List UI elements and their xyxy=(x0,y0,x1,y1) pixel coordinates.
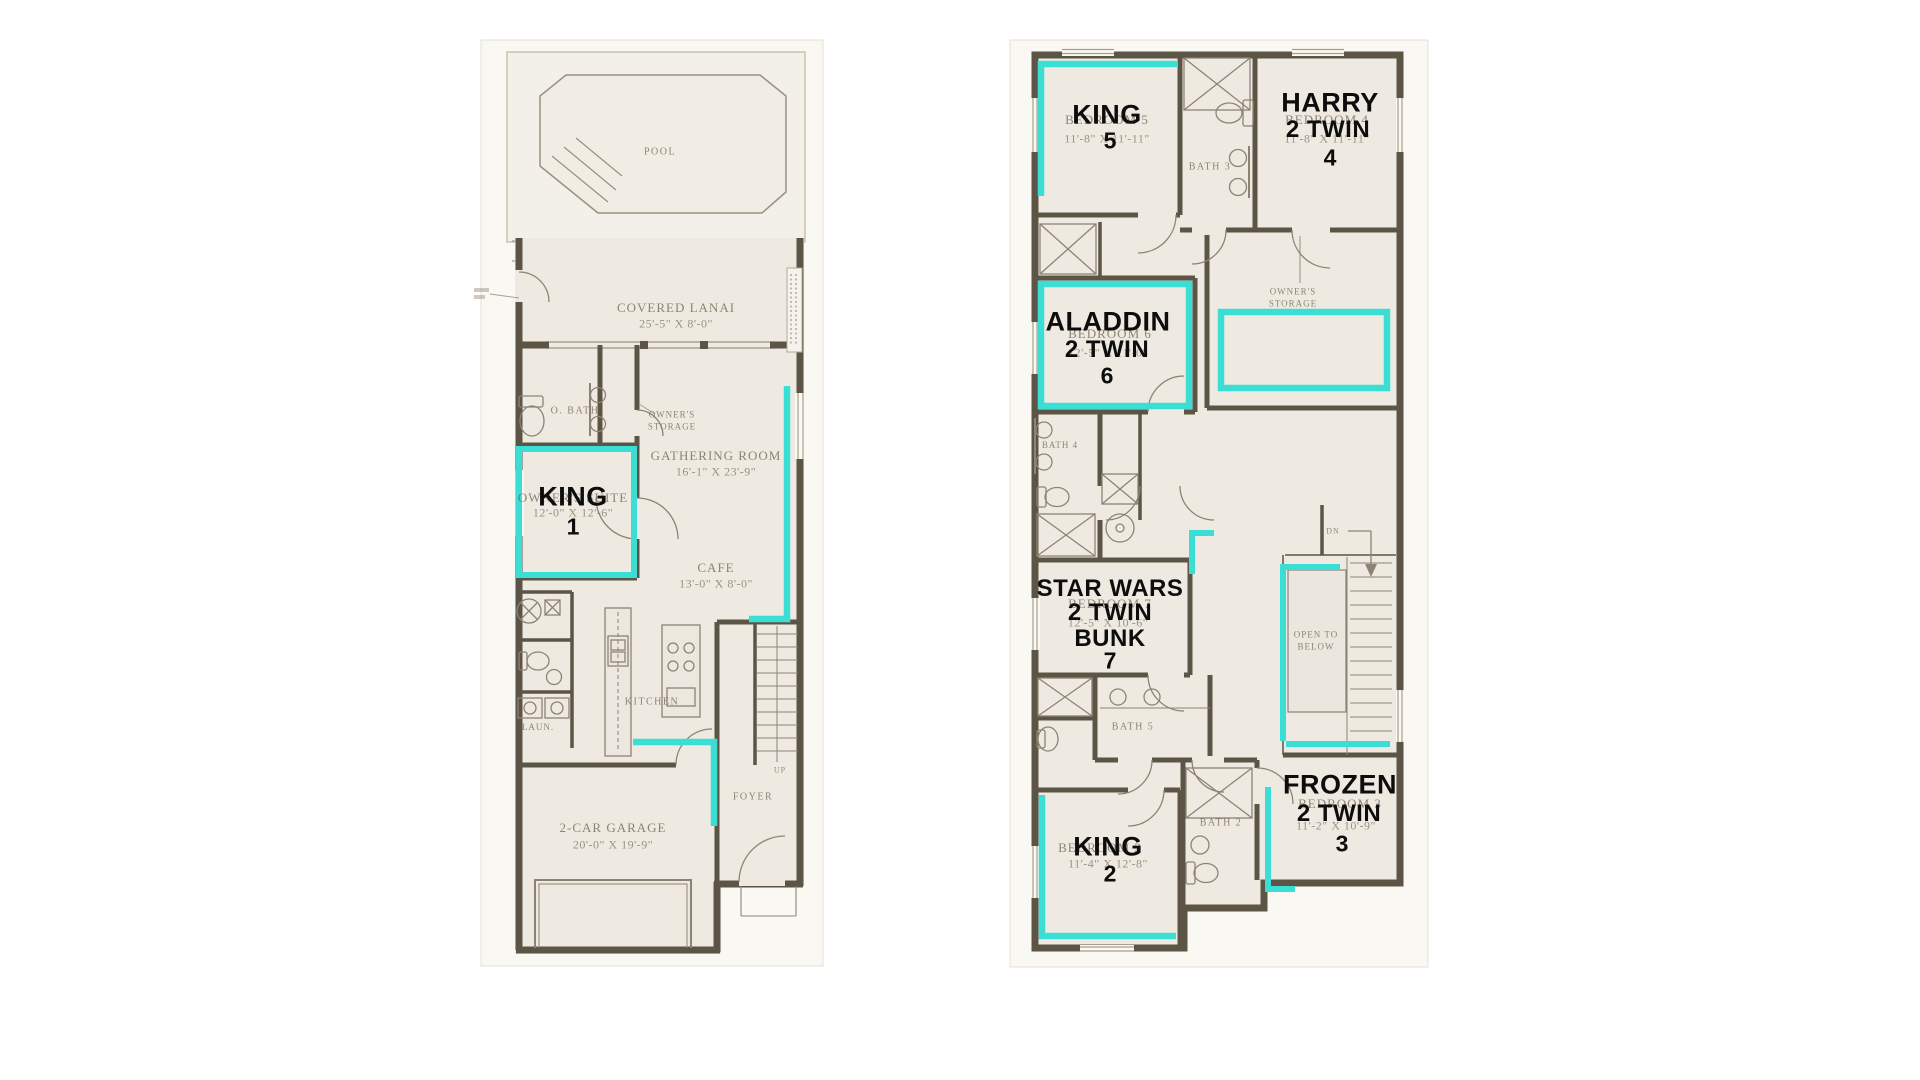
king-1-number: 1 xyxy=(567,514,580,541)
garage-label: 2-CAR GARAGE xyxy=(560,820,667,836)
floor-plans-drawing xyxy=(0,0,1920,1080)
king-1-highlight-label: KING xyxy=(538,482,608,513)
gathering-room-dims: 16'-1" X 23'-9" xyxy=(676,465,756,480)
laundry-label: LAUN. xyxy=(522,722,554,734)
king-2-highlight-label: KING xyxy=(1073,832,1143,863)
covered-lanai-label: COVERED LANAI xyxy=(617,300,735,316)
bath-4-label: BATH 4 xyxy=(1042,440,1078,452)
frozen-2twin-label: 2 TWIN xyxy=(1297,800,1381,828)
star-wars-number: 7 xyxy=(1104,648,1117,675)
bath-3-label: BATH 3 xyxy=(1189,162,1232,173)
slider-mullion xyxy=(640,341,648,349)
king-5-number: 5 xyxy=(1104,128,1117,155)
first-floor-area xyxy=(515,238,804,954)
floor-plan-screenshot: POOL COVERED LANAI 25'-5" X 8'-0" O. BAT… xyxy=(0,0,1920,1080)
kitchen-counter xyxy=(605,608,631,756)
king-5-highlight-label: KING xyxy=(1072,100,1142,131)
kitchen-label: KITCHEN xyxy=(625,697,679,708)
garage-dims: 20'-0" X 19'-9" xyxy=(573,838,653,853)
owners-bath-label: O. BATH xyxy=(551,406,600,417)
bath-2-label: BATH 2 xyxy=(1200,818,1243,829)
owners-storage-label: OWNER'S STORAGE xyxy=(648,409,696,432)
harry-highlight-label: HARRY xyxy=(1281,88,1379,119)
stairs-dn-label: DN xyxy=(1326,527,1340,536)
aladdin-2twin-label: 2 TWIN xyxy=(1065,336,1149,364)
harry-2twin-label: 2 TWIN xyxy=(1286,116,1370,144)
pool-label: POOL xyxy=(644,147,676,158)
aladdin-highlight-label: ALADDIN xyxy=(1046,307,1171,338)
cafe-label: CAFE xyxy=(697,560,734,576)
bath-5-label: BATH 5 xyxy=(1112,722,1155,733)
covered-lanai-dims: 25'-5" X 8'-0" xyxy=(639,317,713,332)
slider-mullion xyxy=(700,341,708,349)
stairs-up-label: UP xyxy=(774,766,786,775)
open-to-below-label: OPEN TO BELOW xyxy=(1294,629,1338,652)
gathering-room-label: GATHERING ROOM xyxy=(651,448,782,464)
cafe-dims: 13'-0" X 8'-0" xyxy=(679,577,753,592)
star-wars-2twin-label: 2 TWIN xyxy=(1068,599,1152,627)
king-2-number: 2 xyxy=(1104,861,1117,888)
frozen-highlight-label: FROZEN xyxy=(1283,770,1397,801)
foyer-label: FOYER xyxy=(733,792,773,803)
frozen-number: 3 xyxy=(1336,831,1349,858)
harry-number: 4 xyxy=(1324,145,1337,172)
aladdin-number: 6 xyxy=(1101,363,1114,390)
pool-shape xyxy=(540,75,786,213)
owners-storage-2-label: OWNER'S STORAGE xyxy=(1269,286,1317,309)
